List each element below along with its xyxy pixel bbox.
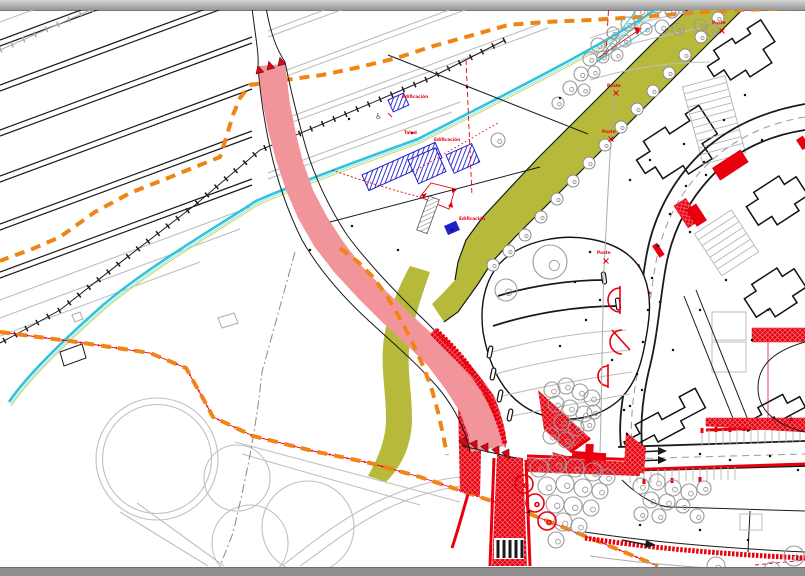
tree-symbol <box>640 23 652 35</box>
tree-symbol <box>676 499 690 513</box>
survey-dot <box>351 225 353 227</box>
tree-symbol <box>583 500 599 516</box>
map-label: Edificación <box>459 215 485 222</box>
survey-dot <box>657 245 659 247</box>
site-boundary <box>0 10 795 566</box>
survey-dot <box>651 277 653 279</box>
tree-symbol <box>564 497 582 515</box>
blue-buildings <box>330 55 588 235</box>
map-label: 2 <box>789 416 793 423</box>
survey-dot <box>669 213 671 215</box>
tree-symbol <box>563 81 577 95</box>
tree-symbol <box>487 259 499 271</box>
survey-dot <box>559 97 561 99</box>
tree-symbol <box>592 483 608 499</box>
survey-dot <box>585 319 587 321</box>
survey-dot <box>767 309 769 311</box>
survey-dot <box>689 231 691 233</box>
map-label: Edificación <box>402 93 428 100</box>
survey-dot <box>649 159 651 161</box>
survey-dot <box>672 349 674 351</box>
survey-dot <box>641 389 643 391</box>
survey-dot <box>636 373 638 375</box>
tree-symbol <box>697 481 711 495</box>
tree-symbol <box>551 193 563 205</box>
tree-symbol <box>556 475 574 493</box>
map-label: Poste <box>712 20 726 26</box>
survey-dot <box>747 539 749 541</box>
map-label: Poste <box>602 129 616 135</box>
drawing-viewport: EdificaciónTaludEdificaciónEdificaciónPo… <box>0 0 805 576</box>
survey-dot <box>629 179 631 181</box>
survey-dot <box>761 139 763 141</box>
survey-dot <box>623 409 625 411</box>
tree-symbol <box>690 509 704 523</box>
survey-dot <box>574 281 576 283</box>
tree-symbol <box>552 97 564 109</box>
tree-symbol <box>538 477 556 495</box>
tree-symbol <box>588 66 600 78</box>
tree-symbol <box>655 20 669 34</box>
tree-symbol <box>634 507 648 521</box>
tree-symbol <box>633 478 649 494</box>
map-label: Poste <box>607 83 621 89</box>
survey-dot <box>699 529 701 531</box>
survey-dot <box>683 143 685 145</box>
survey-dot <box>629 405 631 407</box>
survey-dot <box>647 309 649 311</box>
tree-symbol <box>631 103 643 115</box>
tree-symbol <box>681 484 697 500</box>
tree-symbol <box>643 492 659 508</box>
tree-symbol-red <box>538 512 556 530</box>
zebra-crossing <box>494 538 524 559</box>
tree-symbol <box>567 175 579 187</box>
map-label: Poste <box>597 250 611 256</box>
tree-symbol <box>535 211 547 223</box>
survey-dot <box>348 118 350 120</box>
tree-symbol <box>679 49 691 61</box>
survey-dot <box>769 455 771 457</box>
map-label: Talud <box>404 130 417 136</box>
site-plan-canvas: EdificaciónTaludEdificaciónEdificaciónPo… <box>0 10 805 567</box>
tree-symbol <box>647 85 659 97</box>
survey-dot <box>751 339 753 341</box>
survey-dot <box>309 249 311 251</box>
survey-dot <box>699 309 701 311</box>
tree-symbol <box>707 557 725 567</box>
survey-dot <box>639 524 641 526</box>
survey-dot <box>744 94 746 96</box>
survey-dot <box>699 453 701 455</box>
survey-dot <box>797 469 799 471</box>
tree-symbol <box>574 479 592 497</box>
survey-dot <box>611 359 613 361</box>
survey-dot <box>703 161 705 163</box>
tree-symbol <box>615 121 627 133</box>
tree-symbol <box>611 49 623 61</box>
tree-symbol <box>659 494 675 510</box>
survey-dot <box>659 301 661 303</box>
survey-dot <box>705 174 707 176</box>
survey-dot <box>729 459 731 461</box>
tree-symbol <box>652 509 666 523</box>
tree-symbol <box>695 31 707 43</box>
tree-symbol <box>574 67 588 81</box>
tree-symbol <box>578 84 590 96</box>
tree-symbol <box>546 495 564 513</box>
survey-dot <box>466 86 468 88</box>
survey-dot <box>723 119 725 121</box>
survey-dot <box>451 229 453 231</box>
survey-dot <box>528 511 530 513</box>
survey-dot <box>589 251 591 253</box>
tree-symbol <box>519 229 531 241</box>
tree-symbol <box>548 532 564 548</box>
tree-symbol <box>503 245 515 257</box>
survey-dot <box>599 299 601 301</box>
tree-symbol <box>491 133 505 147</box>
survey-dot <box>642 341 644 343</box>
survey-dot <box>685 185 687 187</box>
disabled-parking-icon: ♿ <box>375 112 382 121</box>
tree-symbol <box>663 67 675 79</box>
survey-dot <box>397 249 399 251</box>
survey-dot <box>626 433 628 435</box>
tree-symbol <box>583 157 595 169</box>
map-label: Edificación <box>434 136 460 143</box>
window-bottom-bar <box>0 567 805 576</box>
survey-dot <box>725 279 727 281</box>
survey-dot <box>559 345 561 347</box>
